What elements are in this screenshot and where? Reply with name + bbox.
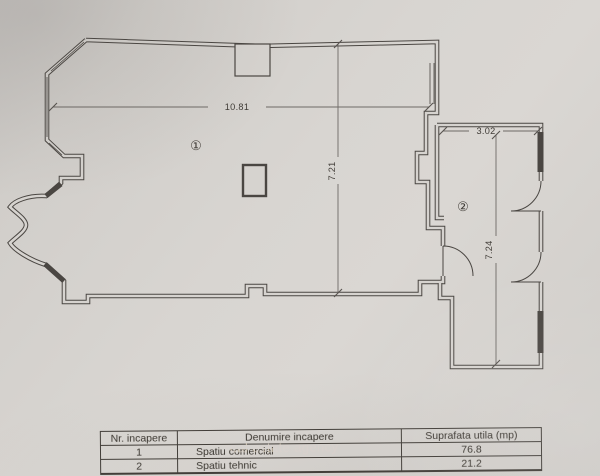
header-suprafata-utila: Suprafata utila (mp) bbox=[402, 428, 541, 442]
cell-nr-1: 1 bbox=[101, 445, 178, 459]
floor-plan-drawing: 10.81 7.21 3.02 7.24 ① ② bbox=[0, 0, 600, 430]
dimension-label-room2-width: 3.02 bbox=[476, 126, 495, 136]
door-swings bbox=[443, 181, 541, 282]
cell-denumire-2: Spatiu tehnic bbox=[178, 457, 402, 472]
main-room-walls bbox=[10, 40, 443, 302]
watermark-text: real estate agency bbox=[225, 440, 339, 456]
header-nr-incapere: Nr. incapere bbox=[101, 431, 178, 445]
dimension-label-main-height: 7.21 bbox=[327, 161, 337, 180]
scanned-floor-plan-photo: 10.81 7.21 3.02 7.24 ① ② Nr. incapere De… bbox=[0, 0, 600, 476]
column bbox=[243, 165, 266, 196]
room2-marker: ② bbox=[457, 199, 469, 214]
dimension-label-room2-height: 7.24 bbox=[484, 240, 494, 259]
cell-suprafata-1: 76.8 bbox=[402, 442, 541, 456]
dimension-label-main-width: 10.81 bbox=[225, 102, 250, 112]
room1-marker: ① bbox=[190, 138, 202, 153]
window-fill-lower bbox=[538, 311, 544, 353]
cell-nr-2: 2 bbox=[101, 459, 178, 473]
window-fill-upper bbox=[538, 132, 544, 172]
thick-wall-segments bbox=[45, 184, 64, 281]
top-wall-pilaster bbox=[235, 44, 270, 76]
cell-suprafata-2: 21.2 bbox=[402, 456, 541, 470]
